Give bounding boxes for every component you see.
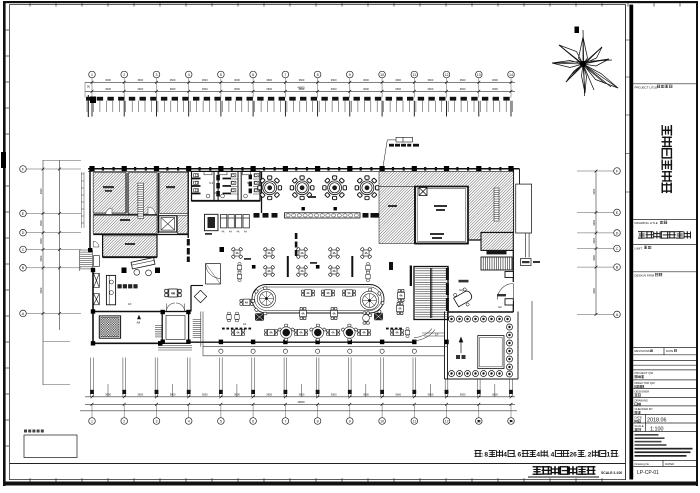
svg-text:10: 10 [380, 73, 384, 77]
svg-text:3900: 3900 [592, 237, 596, 243]
svg-text:46800: 46800 [297, 86, 305, 90]
svg-text:12: 12 [445, 420, 449, 424]
svg-text:SCALE:1:100: SCALE:1:100 [601, 471, 622, 475]
svg-text:PROJECT QW: PROJECT QW [635, 371, 654, 375]
svg-text:S.3: S.3 [247, 181, 252, 185]
svg-text:3600: 3600 [105, 78, 111, 82]
svg-text:7: 7 [284, 73, 286, 77]
svg-text:3600: 3600 [428, 87, 434, 91]
svg-text:DRAWING LITLE: DRAWING LITLE [635, 221, 658, 225]
svg-text:3600: 3600 [363, 393, 369, 397]
svg-text:2A: 2A [243, 322, 246, 326]
svg-text:1:100: 1:100 [650, 426, 664, 432]
svg-text:11: 11 [412, 73, 416, 77]
svg-text:10: 10 [380, 420, 384, 424]
svg-text:3600: 3600 [395, 87, 401, 91]
svg-text:4A: 4A [244, 231, 247, 234]
svg-text:2: 2 [123, 420, 125, 424]
svg-text:3600: 3600 [170, 78, 176, 82]
svg-text:C: C [22, 248, 25, 252]
svg-text:DRAWING: DRAWING [635, 399, 648, 403]
svg-text:3600: 3600 [331, 78, 337, 82]
svg-text:3600: 3600 [266, 78, 272, 82]
svg-text:3900: 3900 [592, 188, 596, 194]
svg-text:8: 8 [317, 420, 319, 424]
svg-text:3900: 3900 [39, 287, 43, 293]
svg-text:CHECKED BY: CHECKED BY [635, 407, 653, 411]
svg-text:3600: 3600 [299, 393, 305, 397]
svg-text:3600: 3600 [202, 393, 208, 397]
svg-text:4A: 4A [229, 231, 232, 234]
svg-text:4: 4 [503, 451, 507, 458]
svg-text:Drawing No.: Drawing No. [635, 462, 651, 466]
svg-text:C: C [616, 247, 619, 251]
svg-text:PROJECT LITLE: PROJECT LITLE [635, 86, 658, 90]
svg-text:3600: 3600 [395, 78, 401, 82]
svg-text:1F: 1F [128, 302, 132, 306]
svg-text:4A: 4A [237, 231, 240, 234]
svg-text:13: 13 [477, 73, 481, 77]
svg-text:A2: A2 [498, 305, 502, 309]
svg-text:3600: 3600 [266, 393, 272, 397]
svg-text:2: 2 [123, 73, 125, 77]
svg-text:3: 3 [156, 420, 158, 424]
svg-text:4: 4 [551, 451, 555, 458]
svg-text:6: 6 [252, 73, 254, 77]
svg-text:11: 11 [412, 420, 416, 424]
svg-text:2018.06: 2018.06 [647, 418, 667, 424]
svg-text:3600: 3600 [234, 87, 240, 91]
svg-text:D: D [22, 231, 25, 235]
svg-text:3600: 3600 [492, 78, 498, 82]
svg-text:SCALE: SCALE [635, 424, 644, 428]
svg-text:3600: 3600 [428, 393, 434, 397]
svg-text:3600: 3600 [234, 393, 240, 397]
svg-text:DATE: DATE [666, 349, 673, 353]
svg-text:14: 14 [509, 73, 513, 77]
svg-text:3900: 3900 [39, 188, 43, 194]
svg-text:9: 9 [349, 73, 351, 77]
svg-text:3600: 3600 [170, 393, 176, 397]
svg-text:1: 1 [91, 73, 93, 77]
svg-text:3600: 3600 [492, 87, 498, 91]
svg-text:8: 8 [484, 451, 488, 458]
svg-text:2: 2 [588, 451, 592, 458]
svg-text:5: 5 [220, 420, 222, 424]
svg-text:7: 7 [284, 420, 286, 424]
svg-text:3600: 3600 [266, 87, 272, 91]
svg-text:6: 6 [518, 451, 522, 458]
svg-text:3600: 3600 [234, 78, 240, 82]
svg-text:DATE: DATE [635, 416, 642, 420]
svg-text:1: 1 [607, 451, 611, 458]
svg-text:3600: 3600 [137, 393, 143, 397]
svg-text:26: 26 [570, 451, 578, 458]
svg-text:12: 12 [445, 73, 449, 77]
svg-text:A8: A8 [137, 321, 141, 325]
svg-text:3900: 3900 [592, 254, 596, 260]
svg-text:4: 4 [536, 451, 540, 458]
svg-text:5: 5 [220, 73, 222, 77]
svg-text:3600: 3600 [105, 393, 111, 397]
svg-text:DESIGN FIRM: DESIGN FIRM [635, 274, 655, 278]
svg-text:3900: 3900 [39, 238, 43, 244]
svg-text:3600: 3600 [492, 393, 498, 397]
svg-text:REVISIONS: REVISIONS [635, 349, 650, 353]
svg-text:3600: 3600 [331, 87, 337, 91]
svg-text:3: 3 [156, 73, 158, 77]
svg-text:S.3: S.3 [209, 181, 214, 185]
svg-text:3600: 3600 [105, 87, 111, 91]
svg-text:1: 1 [91, 420, 93, 424]
svg-text:4A: 4A [222, 231, 225, 234]
svg-text:D: D [616, 231, 619, 235]
svg-text:3600: 3600 [395, 393, 401, 397]
svg-text:3600: 3600 [202, 78, 208, 82]
svg-text:3600: 3600 [363, 78, 369, 82]
svg-text:3600: 3600 [460, 78, 466, 82]
svg-text:1F: 1F [435, 333, 439, 337]
svg-text:3900: 3900 [39, 255, 43, 261]
svg-text:3600: 3600 [299, 78, 305, 82]
svg-text:4: 4 [188, 73, 190, 77]
svg-text:3600: 3600 [460, 87, 466, 91]
svg-text:3900: 3900 [592, 287, 596, 293]
svg-text:DESIGNER: DESIGNER [635, 390, 650, 394]
svg-text:3600: 3600 [428, 78, 434, 82]
svg-text:DATED: DATED [665, 462, 674, 466]
svg-text:4: 4 [188, 420, 190, 424]
svg-text:3600: 3600 [331, 393, 337, 397]
svg-text:LP-CP-01: LP-CP-01 [637, 470, 659, 476]
svg-text:LIMIT: LIMIT [635, 246, 643, 250]
svg-text:DIRECTOR QW: DIRECTOR QW [635, 381, 656, 385]
svg-text:6: 6 [252, 420, 254, 424]
svg-text:3600: 3600 [137, 87, 143, 91]
svg-text:3600: 3600 [363, 87, 369, 91]
svg-text:3600: 3600 [170, 87, 176, 91]
svg-text:8: 8 [317, 73, 319, 77]
svg-text:46800: 46800 [297, 400, 305, 404]
svg-text:3900: 3900 [592, 219, 596, 225]
svg-text:3600: 3600 [137, 78, 143, 82]
svg-text:3900: 3900 [39, 220, 43, 226]
svg-text:9: 9 [349, 420, 351, 424]
svg-text:3600: 3600 [460, 393, 466, 397]
svg-text:3600: 3600 [202, 87, 208, 91]
